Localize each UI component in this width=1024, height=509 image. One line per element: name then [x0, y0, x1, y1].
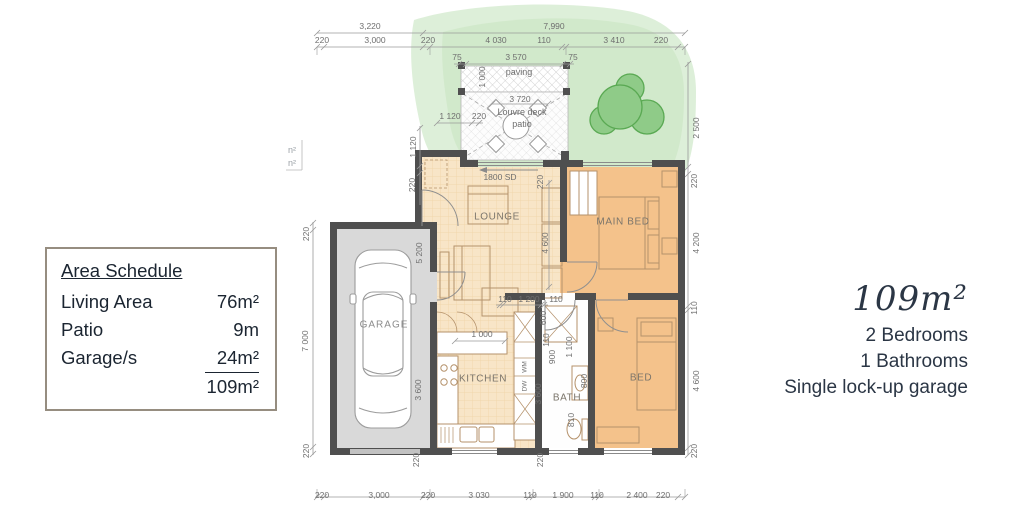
dim-label: 220: [535, 453, 545, 467]
dim-label: 2 500: [691, 117, 701, 138]
garage-door: [350, 449, 420, 454]
dim-label: 4 600: [540, 232, 550, 253]
dim-label: 1 000: [471, 329, 492, 339]
dim-label: 810: [566, 413, 576, 427]
dim-label: 110: [549, 294, 563, 304]
dim-label: 220: [689, 444, 699, 458]
room-label-bed: BED: [630, 373, 652, 384]
dim-label: 110: [689, 301, 699, 315]
dim-label: 110: [498, 294, 512, 304]
dim-label: 3 570: [505, 52, 526, 62]
dim-label: 1 200: [518, 294, 539, 304]
summary-garage: Single lock-up garage: [784, 375, 968, 401]
washing-machine-label: WM: [522, 361, 529, 373]
sliding-door-label: 1800 SD: [483, 172, 516, 182]
dim-label: 220: [407, 178, 417, 192]
schedule-row-label: Living Area: [61, 288, 153, 316]
schedule-row-value: 9m: [233, 316, 259, 344]
room-label-main-bed: MAIN BED: [596, 217, 649, 228]
dim-label: 220: [654, 35, 668, 45]
schedule-row: Patio 9m: [61, 316, 259, 344]
dim-label: 220: [421, 35, 435, 45]
dim-label: 220: [689, 174, 699, 188]
summary-bathrooms: 1 Bathrooms: [784, 349, 968, 375]
dim-label: 1 120: [439, 111, 460, 121]
car-icon: [350, 250, 416, 428]
dim-label: 75: [452, 52, 461, 62]
dim-label: 220: [472, 111, 486, 121]
dim-label: 220: [301, 444, 311, 458]
dim-label: 110: [590, 490, 604, 500]
room-label-bath: BATH: [553, 393, 581, 404]
dim-label: 900: [547, 350, 557, 364]
dim-label: 4 200: [691, 232, 701, 253]
legend-note: n²: [288, 158, 296, 168]
paving-label: paving: [506, 67, 533, 77]
room-label-kitchen: KITCHEN: [459, 374, 507, 385]
dim-label: 220: [315, 490, 329, 500]
dim-label: 3 030: [468, 490, 489, 500]
legend-note: n²: [288, 145, 296, 155]
schedule-row-value: 76m²: [217, 288, 259, 316]
schedule-row-label: Garage/s: [61, 344, 137, 373]
dim-label: 3,000: [364, 35, 385, 45]
patio-label-line2: patio: [512, 119, 532, 129]
dim-label: 3,000: [368, 490, 389, 500]
dim-label: 600: [538, 311, 548, 325]
schedule-total-row: 109m²: [61, 373, 259, 401]
dim-label: 1 120: [408, 136, 418, 157]
dim-label: 7 000: [300, 330, 310, 351]
schedule-row: Garage/s 24m²: [61, 344, 259, 373]
plan-summary: 109m² 2 Bedrooms 1 Bathrooms Single lock…: [784, 280, 968, 401]
dim-label: 110: [541, 333, 551, 347]
dim-label: 1 000: [477, 66, 487, 87]
dim-label: 220: [301, 227, 311, 241]
dim-label: 1 900: [552, 490, 573, 500]
summary-bedrooms: 2 Bedrooms: [784, 323, 968, 349]
schedule-row-value: 24m²: [205, 344, 259, 373]
dim-label: 800: [579, 374, 589, 388]
dim-label: 75: [568, 52, 577, 62]
dim-label: 4 600: [691, 370, 701, 391]
dim-label: 1 100: [564, 336, 574, 357]
schedule-row-label: Patio: [61, 316, 103, 344]
room-label-garage: GARAGE: [360, 320, 409, 331]
patio-label-line1: Louvre deck: [497, 107, 546, 117]
dim-label: 4 030: [485, 35, 506, 45]
dim-label: 220: [656, 490, 670, 500]
area-schedule-panel: Area Schedule Living Area 76m² Patio 9m …: [45, 247, 277, 411]
schedule-row: Living Area 76m²: [61, 288, 259, 316]
dim-label: 7,990: [543, 21, 564, 31]
dim-label: 220: [421, 490, 435, 500]
total-area-script: 109m²: [784, 280, 968, 318]
dim-label: 220: [315, 35, 329, 45]
dishwasher-label: DW: [522, 381, 529, 392]
dim-label: 2 400: [626, 490, 647, 500]
room-label-lounge: LOUNGE: [474, 212, 520, 223]
dim-label: 3 410: [603, 35, 624, 45]
dim-label: 110: [537, 35, 551, 45]
dim-label: 3 600: [413, 379, 423, 400]
area-schedule-title: Area Schedule: [61, 259, 259, 283]
dim-label: 110: [523, 490, 537, 500]
dim-label: 3 600: [533, 383, 543, 404]
dim-label: 220: [535, 175, 545, 189]
floorplan-page: 3,220 7,990 220 3,000 220 4 030 110 3 41…: [0, 0, 1024, 509]
dim-label: 220: [411, 453, 421, 467]
dim-label: 3,220: [359, 21, 380, 31]
dim-label: 3 720: [509, 94, 530, 104]
dim-label: 5 200: [414, 242, 424, 263]
schedule-total-value: 109m²: [207, 373, 259, 401]
